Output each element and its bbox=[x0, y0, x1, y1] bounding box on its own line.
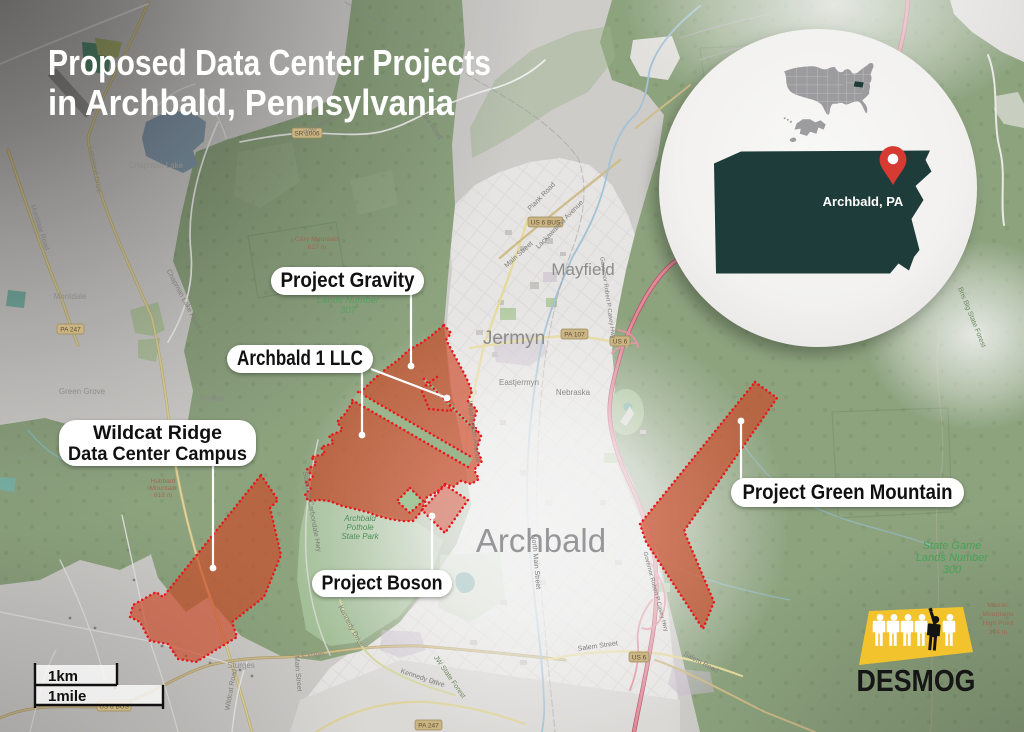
svg-text:Moosic: Moosic bbox=[987, 602, 1009, 609]
svg-text:Nebraska: Nebraska bbox=[556, 388, 591, 397]
svg-text:Green Grove: Green Grove bbox=[59, 387, 106, 396]
svg-text:Powell: Powell bbox=[200, 394, 224, 403]
svg-text:Montdale: Montdale bbox=[54, 292, 87, 301]
svg-text:Project Green Mountain: Project Green Mountain bbox=[743, 480, 953, 504]
svg-text:307: 307 bbox=[340, 305, 357, 316]
svg-text:Mountains: Mountains bbox=[982, 611, 1014, 618]
svg-text:Proposed Data Center Projects: Proposed Data Center Projects bbox=[48, 42, 491, 83]
svg-text:PA 107: PA 107 bbox=[564, 332, 585, 339]
svg-text:Project Boson: Project Boson bbox=[322, 572, 443, 595]
svg-text:Project Gravity: Project Gravity bbox=[281, 268, 415, 292]
svg-text:Eastjermyn: Eastjermyn bbox=[499, 378, 539, 387]
svg-text:Eynon: Eynon bbox=[302, 650, 325, 659]
svg-text:300: 300 bbox=[943, 564, 962, 576]
svg-text:US 6: US 6 bbox=[632, 655, 647, 662]
svg-text:394 m: 394 m bbox=[989, 629, 1008, 636]
svg-text:Wildcat Ridge: Wildcat Ridge bbox=[93, 422, 222, 444]
svg-text:PA 247: PA 247 bbox=[60, 327, 81, 334]
svg-text:Archbald 1 LLC: Archbald 1 LLC bbox=[237, 346, 363, 370]
svg-text:1km: 1km bbox=[48, 668, 78, 685]
svg-text:Pothole: Pothole bbox=[346, 523, 374, 532]
svg-text:Archbald, PA: Archbald, PA bbox=[823, 194, 904, 209]
svg-text:US 6: US 6 bbox=[613, 339, 628, 346]
svg-text:State Game: State Game bbox=[923, 540, 982, 552]
svg-text:DESMOG: DESMOG bbox=[857, 663, 976, 698]
svg-text:627 m: 627 m bbox=[308, 244, 327, 251]
svg-text:Cary Mountain: Cary Mountain bbox=[295, 236, 339, 243]
svg-text:PA 247: PA 247 bbox=[418, 723, 439, 730]
svg-text:Chapman Lake: Chapman Lake bbox=[129, 161, 184, 170]
svg-text:High Point: High Point bbox=[982, 620, 1013, 627]
svg-text:Lands Number: Lands Number bbox=[916, 552, 989, 564]
svg-text:Mountain: Mountain bbox=[150, 485, 177, 492]
svg-text:Jermyn: Jermyn bbox=[483, 328, 545, 349]
svg-text:Archbald: Archbald bbox=[476, 522, 606, 559]
svg-text:Archbald: Archbald bbox=[343, 514, 376, 523]
svg-text:Data Center Campus: Data Center Campus bbox=[68, 443, 247, 465]
svg-text:618 m: 618 m bbox=[154, 492, 172, 499]
svg-text:State Park: State Park bbox=[341, 532, 379, 541]
svg-text:in Archbald, Pennsylvania: in Archbald, Pennsylvania bbox=[48, 82, 455, 123]
svg-text:1mile: 1mile bbox=[48, 688, 86, 705]
svg-text:Hubbard: Hubbard bbox=[151, 478, 176, 485]
